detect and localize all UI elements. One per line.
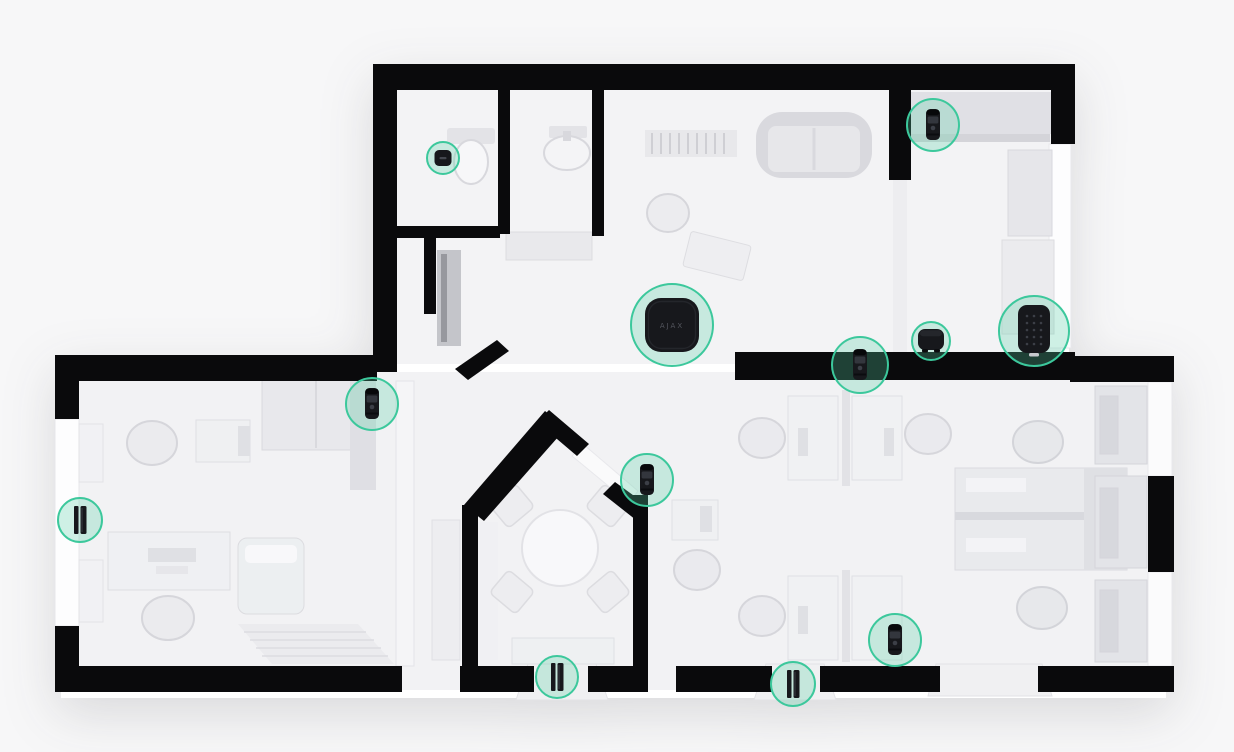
doorprotect-icon [71, 504, 89, 536]
siren-icon [916, 328, 946, 354]
hub-central-marker[interactable]: AJAX [630, 283, 714, 367]
button-icon [433, 149, 453, 167]
motioncam-icon [637, 463, 657, 497]
motioncam-icon [885, 623, 905, 657]
keypad-wall-marker[interactable] [998, 295, 1070, 367]
doorprotect-icon [784, 668, 802, 700]
motion-camera-office-marker[interactable] [868, 613, 922, 667]
siren-wall-marker[interactable] [911, 321, 951, 361]
hub-icon: AJAX [643, 296, 701, 354]
motion-camera-wall-center-marker[interactable] [831, 336, 889, 394]
device-layer: AJAX [0, 0, 1234, 752]
floor-plan-stage: AJAX [0, 0, 1234, 752]
motion-camera-meeting-room-marker[interactable] [620, 453, 674, 507]
motioncam-icon [362, 387, 382, 421]
motion-camera-left-room-marker[interactable] [345, 377, 399, 431]
motion-camera-top-right-marker[interactable] [906, 98, 960, 152]
motioncam-icon [923, 108, 943, 142]
door-sensor-left-window-marker[interactable] [57, 497, 103, 543]
doorprotect-icon [548, 661, 566, 693]
door-sensor-meeting-door-marker[interactable] [535, 655, 579, 699]
svg-text:AJAX: AJAX [660, 322, 684, 330]
motioncam-icon [850, 348, 870, 382]
leak-button-bathroom-marker[interactable] [426, 141, 460, 175]
keypad-icon [1015, 304, 1053, 358]
door-sensor-office-door-marker[interactable] [770, 661, 816, 707]
